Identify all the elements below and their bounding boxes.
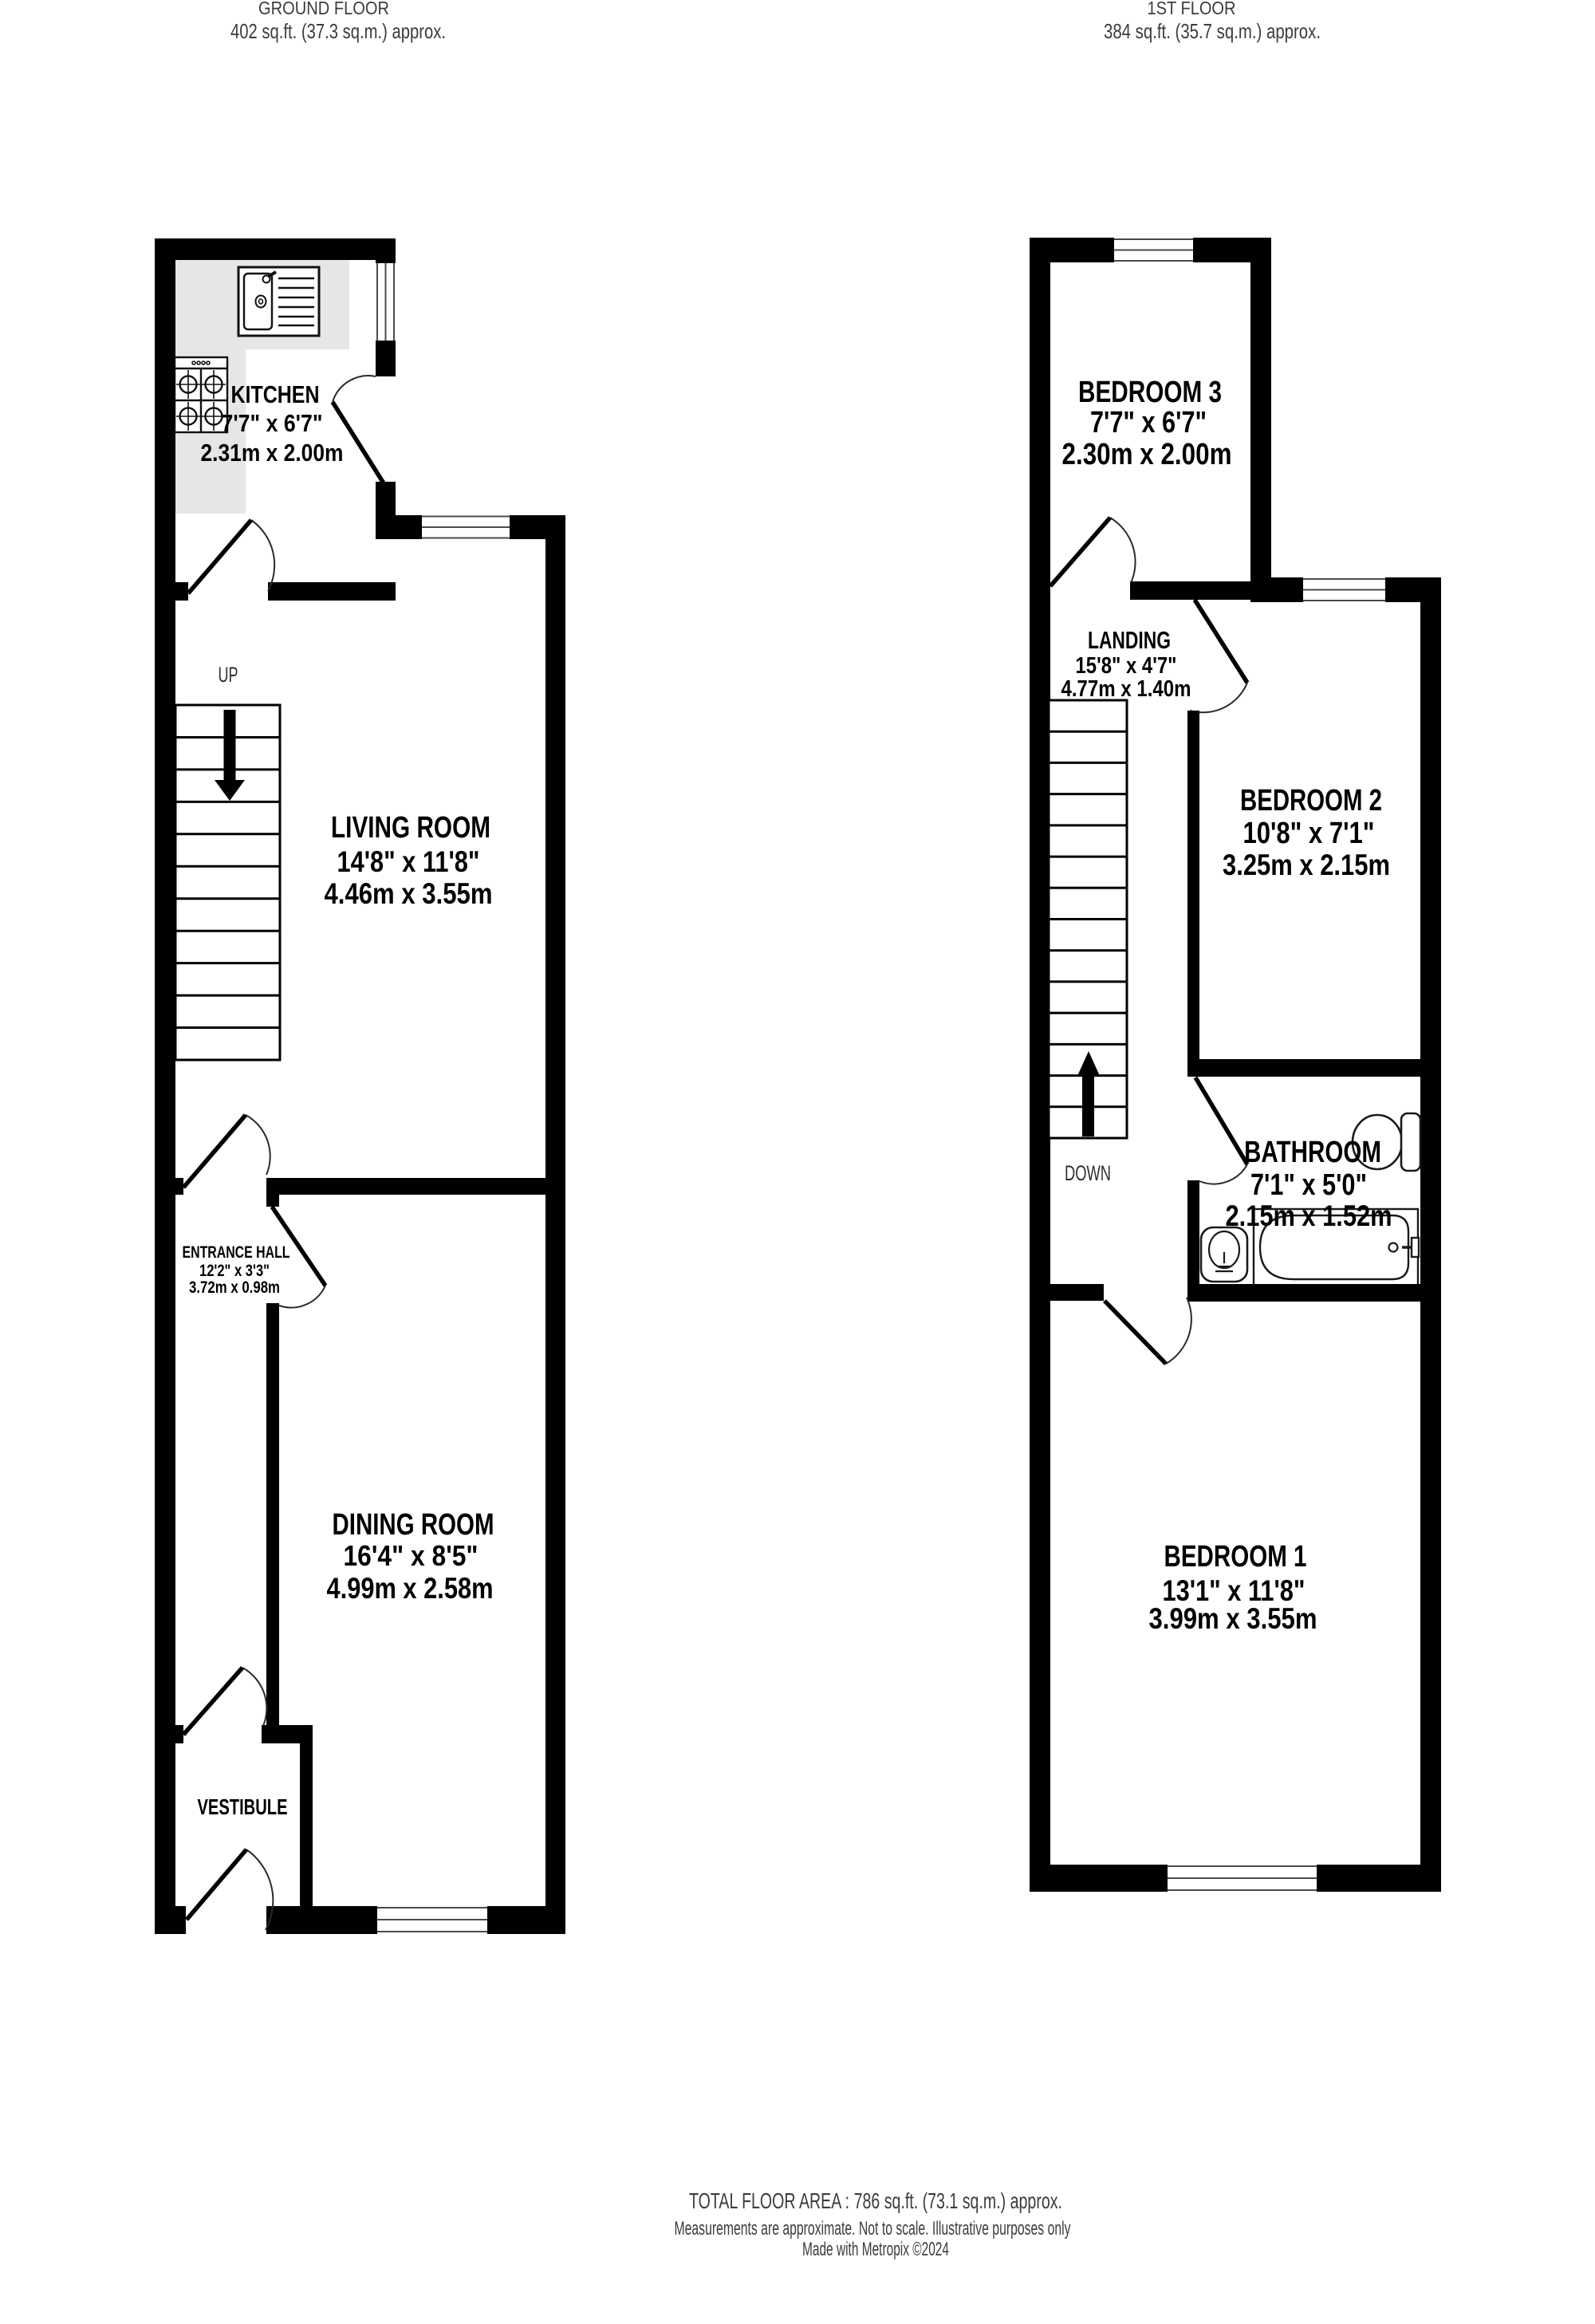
svg-text:16'4" x 8'5": 16'4" x 8'5" <box>344 1539 478 1572</box>
svg-text:7'1" x 5'0": 7'1" x 5'0" <box>1250 1168 1367 1202</box>
svg-text:2.30m x 2.00m: 2.30m x 2.00m <box>1062 438 1232 471</box>
svg-text:LANDING: LANDING <box>1088 626 1171 654</box>
svg-text:DOWN: DOWN <box>1065 1161 1111 1185</box>
svg-text:3.99m x 3.55m: 3.99m x 3.55m <box>1149 1602 1317 1635</box>
svg-text:BEDROOM 2: BEDROOM 2 <box>1240 784 1382 817</box>
svg-text:10'8" x 7'1": 10'8" x 7'1" <box>1243 817 1375 850</box>
svg-text:384 sq.ft. (35.7 sq.m.) approx: 384 sq.ft. (35.7 sq.m.) approx. <box>1104 19 1321 43</box>
svg-text:BEDROOM 1: BEDROOM 1 <box>1164 1540 1307 1574</box>
svg-text:2.31m x 2.00m: 2.31m x 2.00m <box>201 439 344 467</box>
svg-text:15'8" x 4'7": 15'8" x 4'7" <box>1076 653 1177 679</box>
svg-text:ENTRANCE HALL: ENTRANCE HALL <box>183 1243 290 1262</box>
svg-text:7'7" x 6'7": 7'7" x 6'7" <box>222 409 323 437</box>
svg-text:3.25m x 2.15m: 3.25m x 2.15m <box>1223 849 1390 881</box>
svg-text:402 sq.ft. (37.3 sq.m.) approx: 402 sq.ft. (37.3 sq.m.) approx. <box>230 19 446 43</box>
svg-text:KITCHEN: KITCHEN <box>231 380 320 408</box>
svg-text:GROUND FLOOR: GROUND FLOOR <box>258 0 389 18</box>
svg-text:4.77m x 1.40m: 4.77m x 1.40m <box>1061 676 1191 702</box>
svg-text:7'7" x 6'7": 7'7" x 6'7" <box>1090 406 1207 439</box>
svg-text:VESTIBULE: VESTIBULE <box>198 1794 288 1819</box>
svg-text:LIVING ROOM: LIVING ROOM <box>331 811 490 845</box>
svg-text:BATHROOM: BATHROOM <box>1244 1136 1381 1169</box>
svg-text:UP: UP <box>219 663 238 687</box>
svg-text:Measurements are approximate.: Measurements are approximate. Not to sca… <box>675 2218 1071 2239</box>
svg-text:DINING ROOM: DINING ROOM <box>333 1508 494 1542</box>
svg-text:TOTAL FLOOR AREA : 786 sq.ft.: TOTAL FLOOR AREA : 786 sq.ft. (73.1 sq.m… <box>689 2188 1062 2213</box>
svg-text:4.99m x 2.58m: 4.99m x 2.58m <box>327 1572 494 1605</box>
svg-text:14'8" x 11'8": 14'8" x 11'8" <box>337 845 480 878</box>
svg-text:4.46m x 3.55m: 4.46m x 3.55m <box>325 877 493 910</box>
svg-text:2.15m x 1.52m: 2.15m x 1.52m <box>1226 1199 1392 1232</box>
svg-text:3.72m x 0.98m: 3.72m x 0.98m <box>189 1278 280 1297</box>
svg-text:Made with Metropix ©2024: Made with Metropix ©2024 <box>802 2239 949 2260</box>
svg-text:BEDROOM 3: BEDROOM 3 <box>1078 376 1222 409</box>
svg-text:1ST FLOOR: 1ST FLOOR <box>1148 0 1236 18</box>
